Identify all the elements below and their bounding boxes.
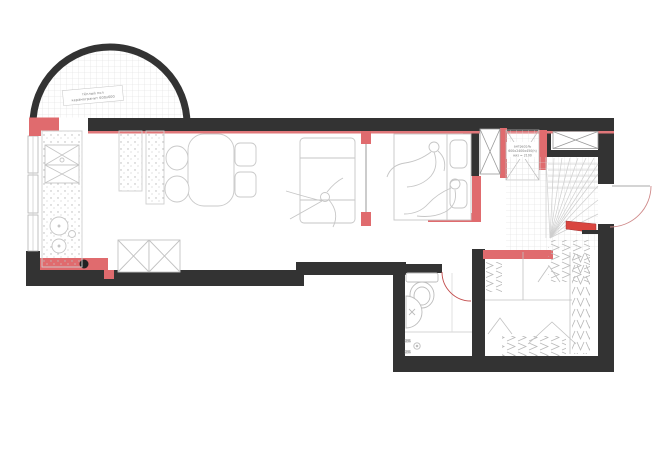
entry-door bbox=[610, 186, 651, 227]
balcony-room: тёплый пол керамогранит 600х600 bbox=[29, 47, 187, 131]
living-bottom-jog-wall bbox=[296, 262, 406, 275]
kitchen-island-right bbox=[146, 131, 164, 204]
balcony-door-opening bbox=[59, 118, 88, 131]
bathroom-wardrobe-wall bbox=[472, 249, 485, 370]
bed bbox=[387, 134, 471, 220]
bathroom-door-swing-arc bbox=[442, 272, 471, 301]
kitchen-sink bbox=[45, 145, 79, 183]
partition-post-red bbox=[361, 131, 371, 144]
bottom-right-wall bbox=[393, 356, 614, 372]
entry-door-opening bbox=[598, 184, 614, 224]
svg-text:антресоль: антресоль bbox=[514, 145, 532, 149]
stair-step-edge bbox=[582, 230, 598, 234]
floor-plan-canvas: тёплый пол керамогранит 600х600 bbox=[0, 0, 658, 465]
svg-text:600х2400х450(h): 600х2400х450(h) bbox=[508, 149, 537, 153]
dining-chair bbox=[166, 146, 188, 170]
left-wall-bottom-pier bbox=[26, 251, 40, 285]
wardrobe-room bbox=[485, 252, 590, 356]
dining-chair bbox=[165, 176, 189, 202]
svg-text:2%: 2% bbox=[405, 339, 411, 343]
lounge-chair bbox=[286, 138, 355, 227]
kitchen-plinth-red-small bbox=[104, 270, 114, 279]
top-wall bbox=[88, 118, 614, 131]
clothes-rail-zigzag-small bbox=[486, 262, 502, 292]
bathroom-left-wall bbox=[393, 262, 405, 370]
dining-chair bbox=[235, 172, 256, 197]
storage-cabinets bbox=[118, 240, 180, 272]
window-corner-red bbox=[29, 124, 41, 136]
dining-table bbox=[188, 134, 234, 206]
kitchen-island-left bbox=[119, 131, 142, 191]
balcony-wall-arc bbox=[33, 47, 187, 124]
left-window-wall bbox=[28, 124, 41, 251]
bedroom-shaft bbox=[480, 129, 500, 174]
hanger-icon bbox=[488, 318, 512, 334]
dining-set bbox=[165, 134, 256, 206]
vent-shaft bbox=[553, 132, 598, 149]
svg-text:2%: 2% bbox=[405, 350, 411, 354]
clothes-rail-zigzag-right bbox=[572, 252, 590, 354]
bathroom-top-wall bbox=[404, 264, 442, 273]
faucet-icon bbox=[60, 158, 64, 162]
glass-partition bbox=[361, 131, 371, 226]
wardrobe-lintel-red bbox=[483, 250, 553, 259]
partition-post-red bbox=[361, 212, 371, 226]
svg-text:низ = 2100: низ = 2100 bbox=[513, 154, 532, 158]
vent-shaft-bottom-wall bbox=[540, 150, 610, 157]
bathroom: 2% 2% bbox=[405, 272, 472, 354]
door-swing-arc bbox=[610, 186, 651, 227]
shower-drain-icon bbox=[414, 343, 420, 349]
dining-chair bbox=[235, 143, 256, 166]
